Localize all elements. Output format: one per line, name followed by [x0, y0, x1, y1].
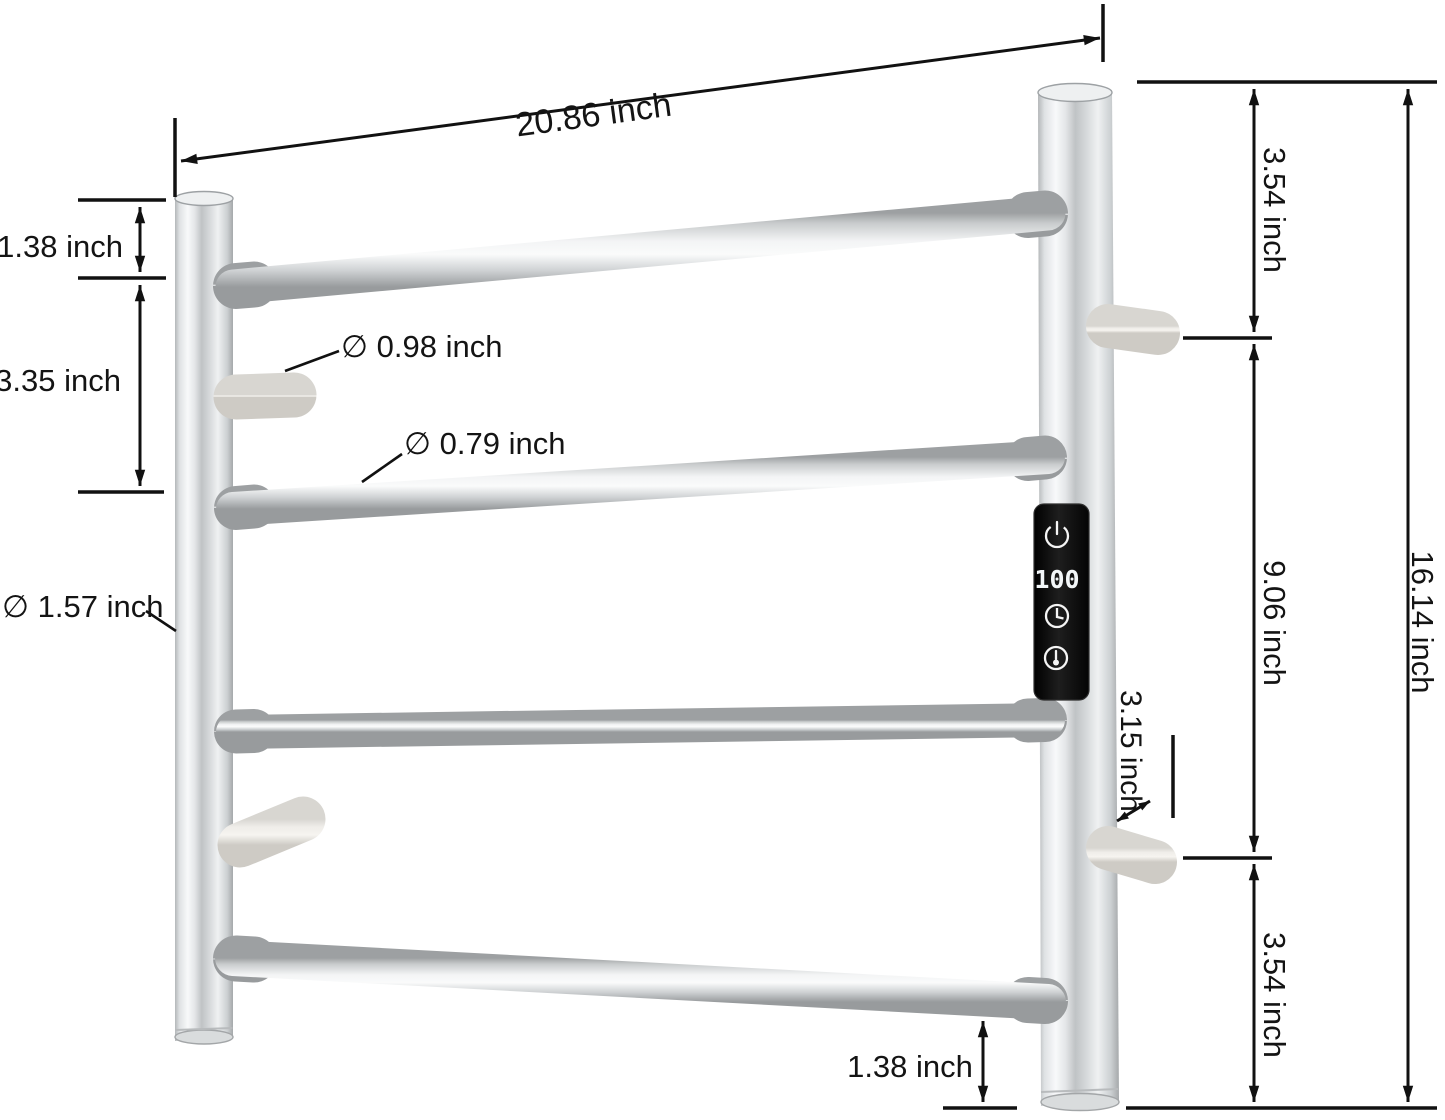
- dimension-diagram-page: 100 20.86 inch 1.38 inch 3.35 inch: [0, 0, 1445, 1120]
- dim-label-right-top-gap: 3.54 inch: [1257, 147, 1292, 273]
- left-post: [175, 192, 233, 1045]
- peg-lower-right: [1108, 848, 1155, 862]
- leader-bar-diameter: [362, 454, 402, 482]
- towel-bar-3: [233, 720, 1048, 732]
- towel-bar-4: [233, 958, 1048, 1002]
- wall-pegs: [236, 326, 1158, 862]
- towel-bar-1: [233, 213, 1048, 287]
- control-panel-body: [1034, 504, 1089, 700]
- dim-label-right-bottom-gap: 3.54 inch: [1257, 932, 1292, 1058]
- dim-label-hook-diameter: ∅ 0.98 inch: [341, 329, 502, 364]
- leader-hook-diameter: [285, 351, 339, 371]
- left-post-top-cap: [175, 192, 233, 206]
- left-post-bottom-cap: [175, 1030, 233, 1044]
- dim-label-left-top-gap: 1.38 inch: [0, 229, 123, 264]
- led-display: 100: [1034, 565, 1079, 594]
- towel-warmer-dimension-diagram: 100 20.86 inch 1.38 inch 3.35 inch: [0, 0, 1445, 1120]
- dim-label-bottom-gap: 1.38 inch: [847, 1049, 973, 1084]
- dim-label-top-width: 20.86 inch: [513, 86, 674, 145]
- towel-rack: 100: [175, 84, 1158, 1111]
- control-panel: 100: [1034, 504, 1089, 700]
- dim-label-left-rung-gap: 3.35 inch: [0, 363, 121, 398]
- left-post-body: [175, 197, 233, 1041]
- dim-label-bar-diameter: ∅ 0.79 inch: [404, 426, 565, 461]
- towel-bar-2: [233, 457, 1048, 509]
- peg-lower-left: [240, 819, 303, 845]
- dim-label-hook-offset: 3.15 inch: [1114, 690, 1147, 812]
- thermometer-icon-bulb: [1053, 660, 1059, 666]
- right-post-top-cap: [1038, 84, 1112, 102]
- peg-upper-left: [236, 395, 294, 397]
- peg-upper-right: [1108, 326, 1158, 333]
- right-post-bottom-cap: [1041, 1094, 1119, 1111]
- dim-label-post-diameter: ∅ 1.57 inch: [2, 589, 163, 624]
- dim-label-right-mid-span: 9.06 inch: [1257, 560, 1292, 686]
- dim-label-overall-height: 16.14 inch: [1405, 550, 1440, 693]
